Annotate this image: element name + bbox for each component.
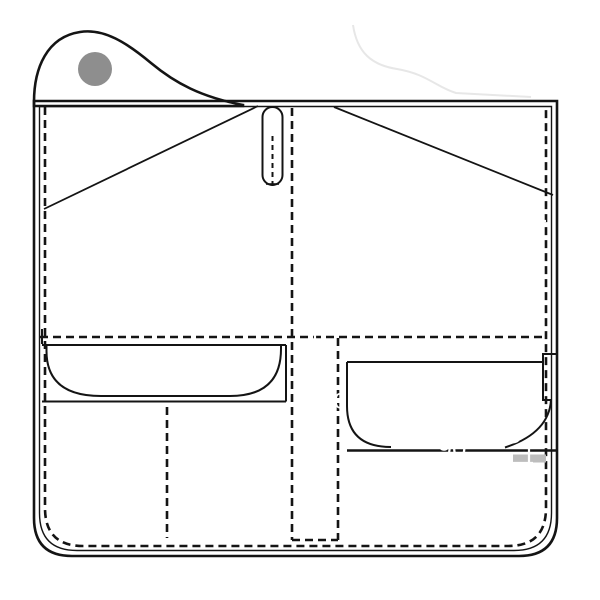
dimension-label: 35 <box>493 496 523 525</box>
pocket-left-curve <box>47 345 282 396</box>
dimension-label: 90 <box>438 433 467 463</box>
pattern-diagram: 115 120 65 10 10 65 65 50 65 70 90 30 42… <box>0 0 600 600</box>
dimension-label: 65 <box>499 273 529 302</box>
dimension-label: 70 <box>311 472 341 501</box>
pocket-right-top <box>347 354 556 362</box>
dimension-label: 115 <box>313 171 343 212</box>
body-inner-line <box>40 107 552 551</box>
ghost-outline <box>353 25 531 97</box>
dimension-label: 120 <box>414 191 457 221</box>
dimension-label-circled: 10 <box>301 367 323 389</box>
fold-line-left <box>44 106 258 209</box>
body-outline <box>34 101 557 556</box>
pattern-diagram-canvas: 115 120 65 10 10 65 65 50 65 70 90 30 42… <box>0 0 600 600</box>
dimension-label: 30 <box>496 416 526 445</box>
flap <box>34 31 243 106</box>
pocket-right-left-curve <box>347 362 391 447</box>
dimension-label: 65 <box>89 416 118 446</box>
dimension-label: 50 <box>48 472 78 501</box>
snap-hole-icon <box>78 52 112 86</box>
dimension-label: 42 <box>353 494 383 523</box>
dimension-label: 65 <box>222 416 251 446</box>
dimension-label: 65 <box>177 469 207 498</box>
dimension-label: 10 <box>322 389 346 414</box>
fold-line-right <box>334 107 553 195</box>
